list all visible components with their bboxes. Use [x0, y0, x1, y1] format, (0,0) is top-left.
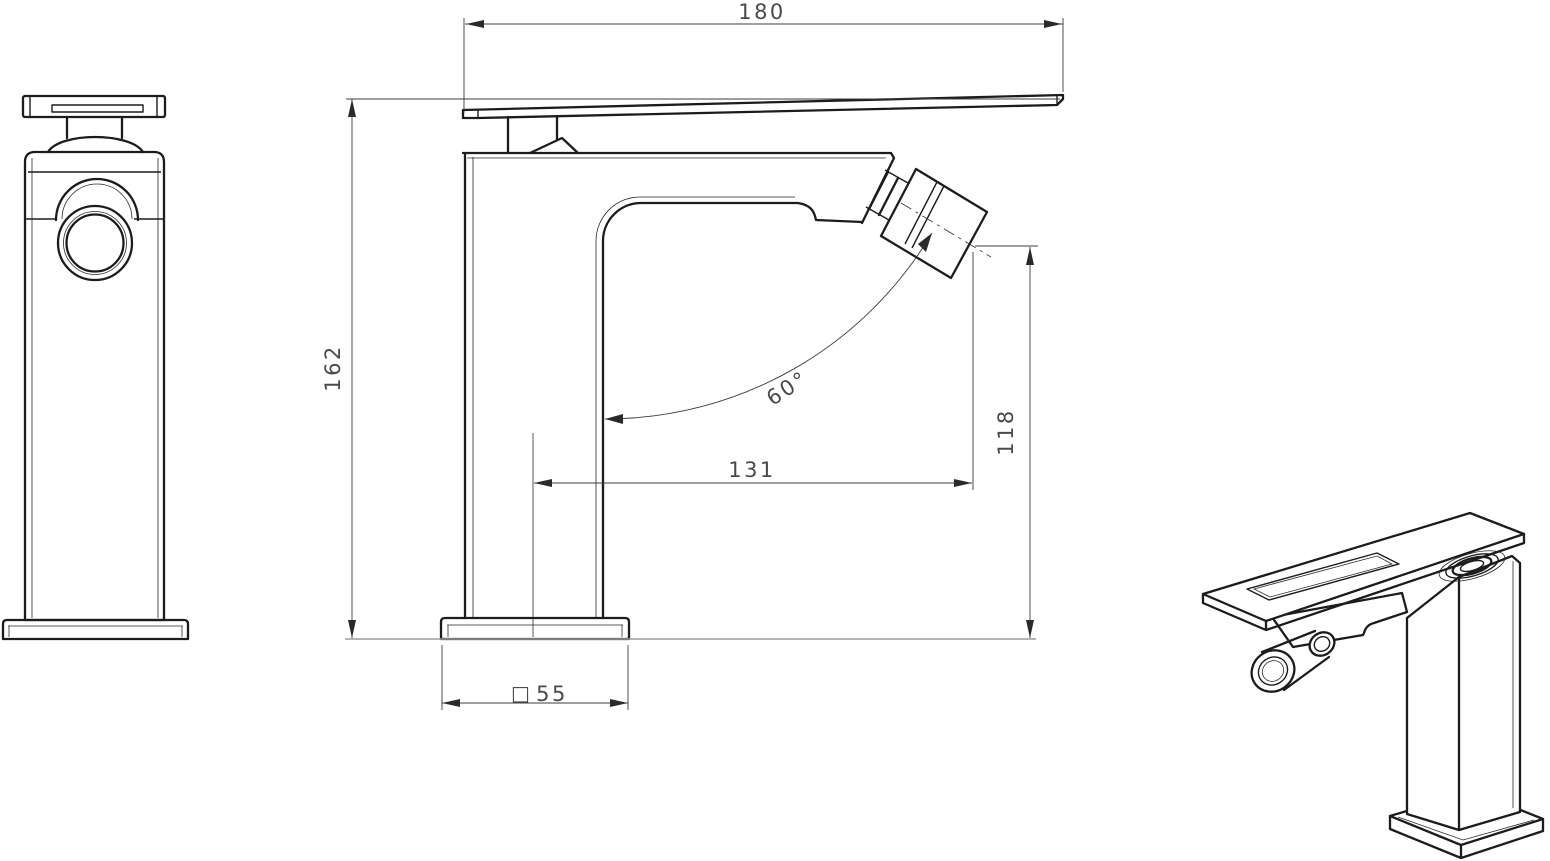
- front-handle-stem: [67, 117, 122, 138]
- arrowhead: [605, 414, 623, 424]
- side-spout-underside-edge-line: [596, 197, 795, 618]
- dimension-162: 162: [321, 99, 1060, 638]
- front-view: [3, 96, 188, 639]
- dimension-55: □ 55: [442, 645, 628, 710]
- side-base: [441, 618, 629, 639]
- arrowhead: [1026, 247, 1034, 265]
- front-base-step: [8, 626, 183, 637]
- front-handle-slot: [52, 105, 143, 112]
- arrowhead: [534, 479, 552, 487]
- arrowhead: [918, 233, 932, 252]
- dimension-180: 180: [464, 0, 1063, 113]
- neck-ribs: [869, 172, 898, 215]
- persp-column: [1407, 556, 1520, 830]
- arrowhead: [1044, 20, 1062, 28]
- arrowhead: [954, 479, 972, 487]
- front-aerator-opening: [67, 215, 124, 272]
- dimension-60deg: 60°: [605, 233, 932, 424]
- front-aerator-mid: [64, 212, 127, 275]
- side-stem: [508, 116, 557, 153]
- dimension-118: 118: [975, 246, 1038, 638]
- arrowhead: [466, 20, 484, 28]
- arrowhead: [1026, 620, 1034, 638]
- drawing-sheet: 180 162 131 118 60° □ 55: [0, 0, 1550, 861]
- technical-drawing: 180 162 131 118 60° □ 55: [0, 0, 1550, 861]
- arrowhead: [442, 699, 460, 707]
- front-handle-plate-caps: [30, 96, 157, 117]
- aerator-head: [881, 169, 987, 278]
- dim-162-label: 162: [321, 344, 345, 392]
- square-section-symbol: □: [511, 681, 531, 705]
- side-stem-wedge: [530, 138, 578, 153]
- side-lever: [463, 95, 1063, 118]
- dim-131-label: 131: [728, 458, 776, 482]
- front-body: [25, 152, 164, 620]
- perspective-view: [1203, 513, 1543, 858]
- arrowhead: [610, 699, 628, 707]
- front-handle-dome: [48, 137, 143, 152]
- arrowhead: [348, 620, 356, 638]
- dim-55-label: 55: [536, 682, 568, 706]
- front-body-edge-lines: [32, 158, 158, 618]
- front-base: [3, 620, 188, 639]
- side-spout-underside: [603, 203, 862, 618]
- front-aerator-outer: [58, 206, 132, 280]
- arrowhead: [348, 99, 356, 117]
- side-body-top: [463, 153, 894, 223]
- dim-180-label: 180: [738, 0, 786, 24]
- dim-118-label: 118: [994, 408, 1018, 456]
- aerator-cap-lines: [905, 182, 944, 248]
- side-view: [345, 95, 1063, 639]
- dimension-131: 131: [534, 252, 973, 490]
- side-base-step: [447, 625, 623, 637]
